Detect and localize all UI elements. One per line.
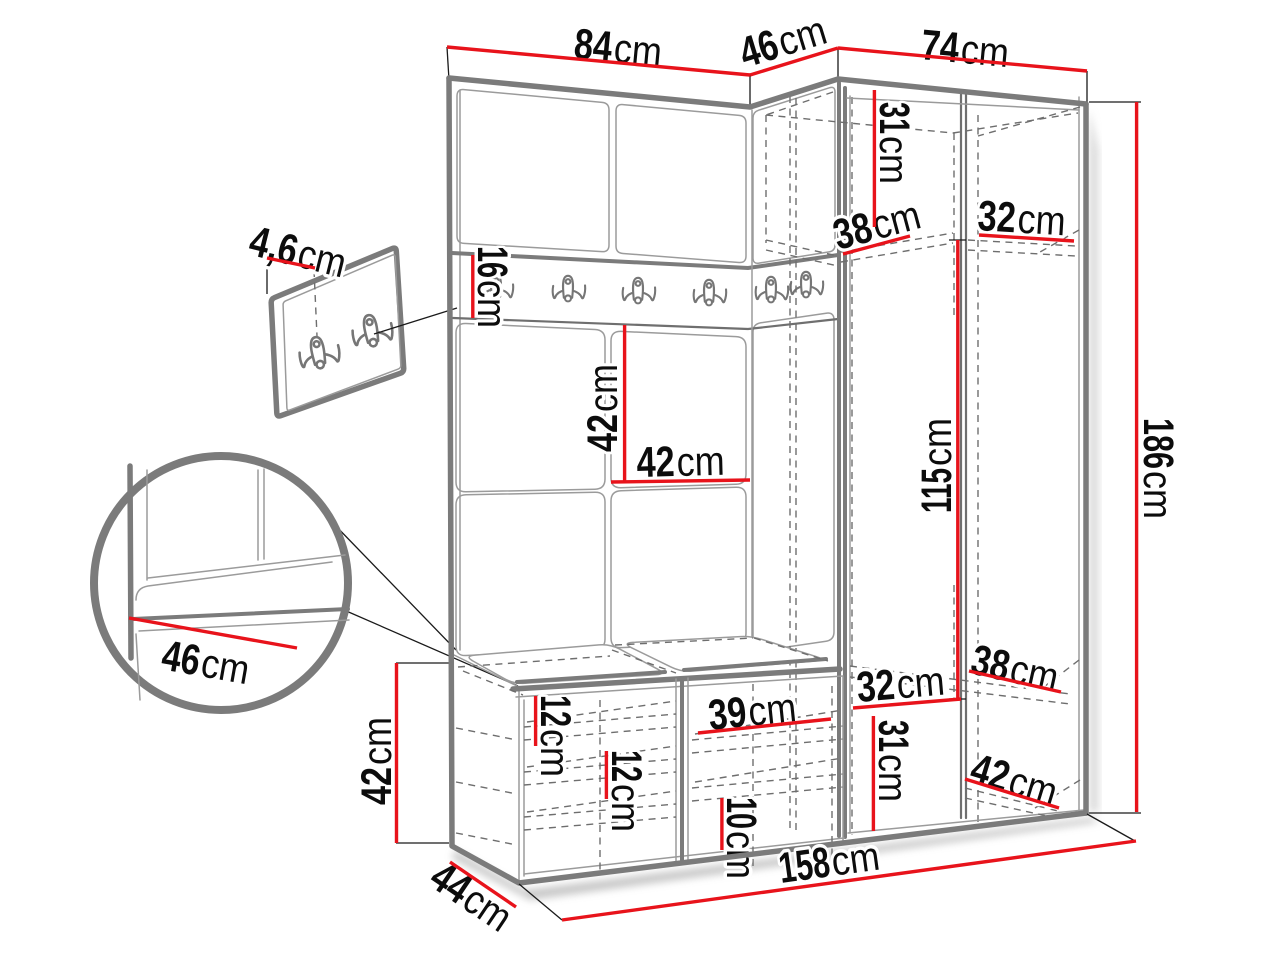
svg-text:74cm: 74cm <box>919 21 1011 77</box>
svg-text:186cm: 186cm <box>1134 418 1182 519</box>
svg-text:31cm: 31cm <box>870 102 918 184</box>
svg-text:12cm: 12cm <box>531 695 579 777</box>
svg-text:84cm: 84cm <box>572 20 664 76</box>
svg-text:31cm: 31cm <box>869 720 917 802</box>
svg-text:10cm: 10cm <box>717 797 765 879</box>
svg-text:42cm: 42cm <box>579 364 627 452</box>
svg-text:115cm: 115cm <box>913 418 961 513</box>
svg-text:16cm: 16cm <box>468 246 516 328</box>
svg-text:12cm: 12cm <box>602 750 650 832</box>
svg-text:42cm: 42cm <box>353 717 401 805</box>
